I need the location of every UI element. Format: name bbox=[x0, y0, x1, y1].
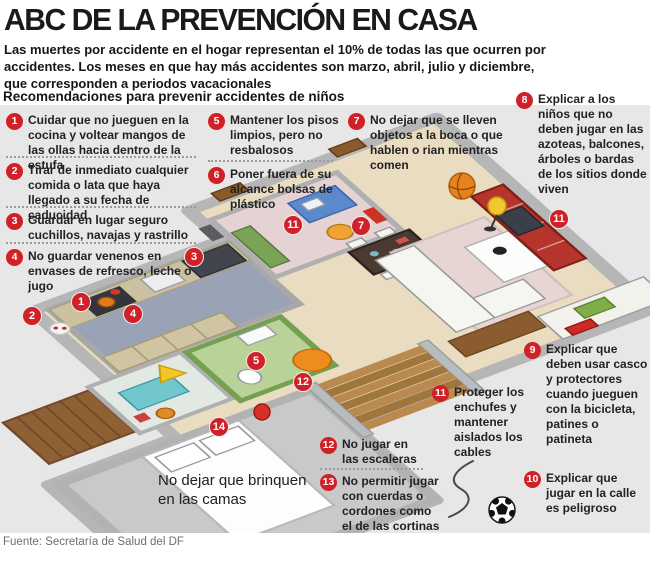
item-text: Guardar en lugar seguro cuchillos, navaj… bbox=[28, 213, 192, 243]
recommendation-item-10: 10 Explicar que jugar en la calle es pel… bbox=[524, 471, 646, 516]
map-badge-11a: 11 bbox=[283, 215, 303, 235]
item-number-badge: 11 bbox=[432, 385, 449, 402]
map-badge-3: 3 bbox=[184, 247, 204, 267]
red-ball bbox=[254, 404, 270, 420]
dotted-separator bbox=[208, 160, 333, 162]
item-number-badge: 6 bbox=[208, 167, 225, 184]
recommendation-item-13: 13 No permitir jugar con cuerdas o cordo… bbox=[320, 474, 440, 534]
item-number-badge: 9 bbox=[524, 342, 541, 359]
recommendation-item-5: 5 Mantener los pisos limpios, pero no re… bbox=[208, 113, 340, 158]
item-number-badge: 8 bbox=[516, 92, 533, 109]
infographic-canvas: ABC DE LA PREVENCIÓN EN CASA Las muertes… bbox=[0, 0, 650, 573]
recommendation-item-6: 6 Poner fuera de su alcance bolsas de pl… bbox=[208, 167, 340, 212]
bed-note-label: No dejar que brinquen en las camas bbox=[158, 472, 308, 510]
recommendation-item-12: 12 No jugar en las escaleras bbox=[320, 437, 425, 467]
source-credit: Fuente: Secretaría de Salud del DF bbox=[3, 536, 184, 548]
item-number-badge: 2 bbox=[6, 163, 23, 180]
map-badge-7: 7 bbox=[351, 216, 371, 236]
item-number-badge: 13 bbox=[320, 474, 337, 491]
item-text: Proteger los enchufes y mantener aislado… bbox=[454, 385, 532, 460]
recommendation-item-3: 3 Guardar en lugar seguro cuchillos, nav… bbox=[6, 213, 192, 243]
item-number-badge: 12 bbox=[320, 437, 337, 454]
map-badge-11b: 11 bbox=[549, 209, 569, 229]
recommendation-item-11: 11 Proteger los enchufes y mantener aisl… bbox=[432, 385, 532, 460]
dotted-separator bbox=[6, 242, 196, 244]
item-text: No permitir jugar con cuerdas o cordones… bbox=[342, 474, 440, 534]
item-text: Explicar que deben usar casco y protecto… bbox=[546, 342, 648, 447]
item-number-badge: 1 bbox=[6, 113, 23, 130]
item-text: Mantener los pisos limpios, pero no resb… bbox=[230, 113, 340, 158]
item-text: Explicar que jugar en la calle es peligr… bbox=[546, 471, 646, 516]
recommendation-item-8: 8 Explicar a los niños que no deben juga… bbox=[516, 92, 647, 197]
recommendation-item-7: 7 No dejar que se lleven objetos a la bo… bbox=[348, 113, 506, 173]
map-badge-14: 14 bbox=[209, 417, 229, 437]
item-number-badge: 4 bbox=[6, 249, 23, 266]
recommendation-item-4: 4 No guardar venenos en envases de refre… bbox=[6, 249, 206, 294]
soccer-ball-icon bbox=[488, 497, 516, 525]
map-badge-2: 2 bbox=[22, 306, 42, 326]
item-text: No jugar en las escaleras bbox=[342, 437, 425, 467]
item-number-badge: 7 bbox=[348, 113, 365, 130]
basketball-icon bbox=[449, 173, 475, 199]
recommendation-item-9: 9 Explicar que deben usar casco y protec… bbox=[524, 342, 648, 447]
item-number-badge: 3 bbox=[6, 213, 23, 230]
dotted-separator bbox=[320, 468, 423, 470]
item-text: No guardar venenos en envases de refresc… bbox=[28, 249, 206, 294]
item-text: Poner fuera de su alcance bolsas de plás… bbox=[230, 167, 340, 212]
item-text: Explicar a los niños que no deben jugar … bbox=[538, 92, 647, 197]
map-badge-5: 5 bbox=[246, 351, 266, 371]
dotted-separator bbox=[6, 206, 196, 208]
cord-squiggle bbox=[449, 461, 473, 517]
map-badge-1: 1 bbox=[71, 292, 91, 312]
map-badge-4: 4 bbox=[123, 304, 143, 324]
item-text: No dejar que se lleven objetos a la boca… bbox=[370, 113, 506, 173]
dotted-separator bbox=[6, 156, 196, 158]
map-badge-12: 12 bbox=[293, 372, 313, 392]
item-number-badge: 5 bbox=[208, 113, 225, 130]
item-number-badge: 10 bbox=[524, 471, 541, 488]
